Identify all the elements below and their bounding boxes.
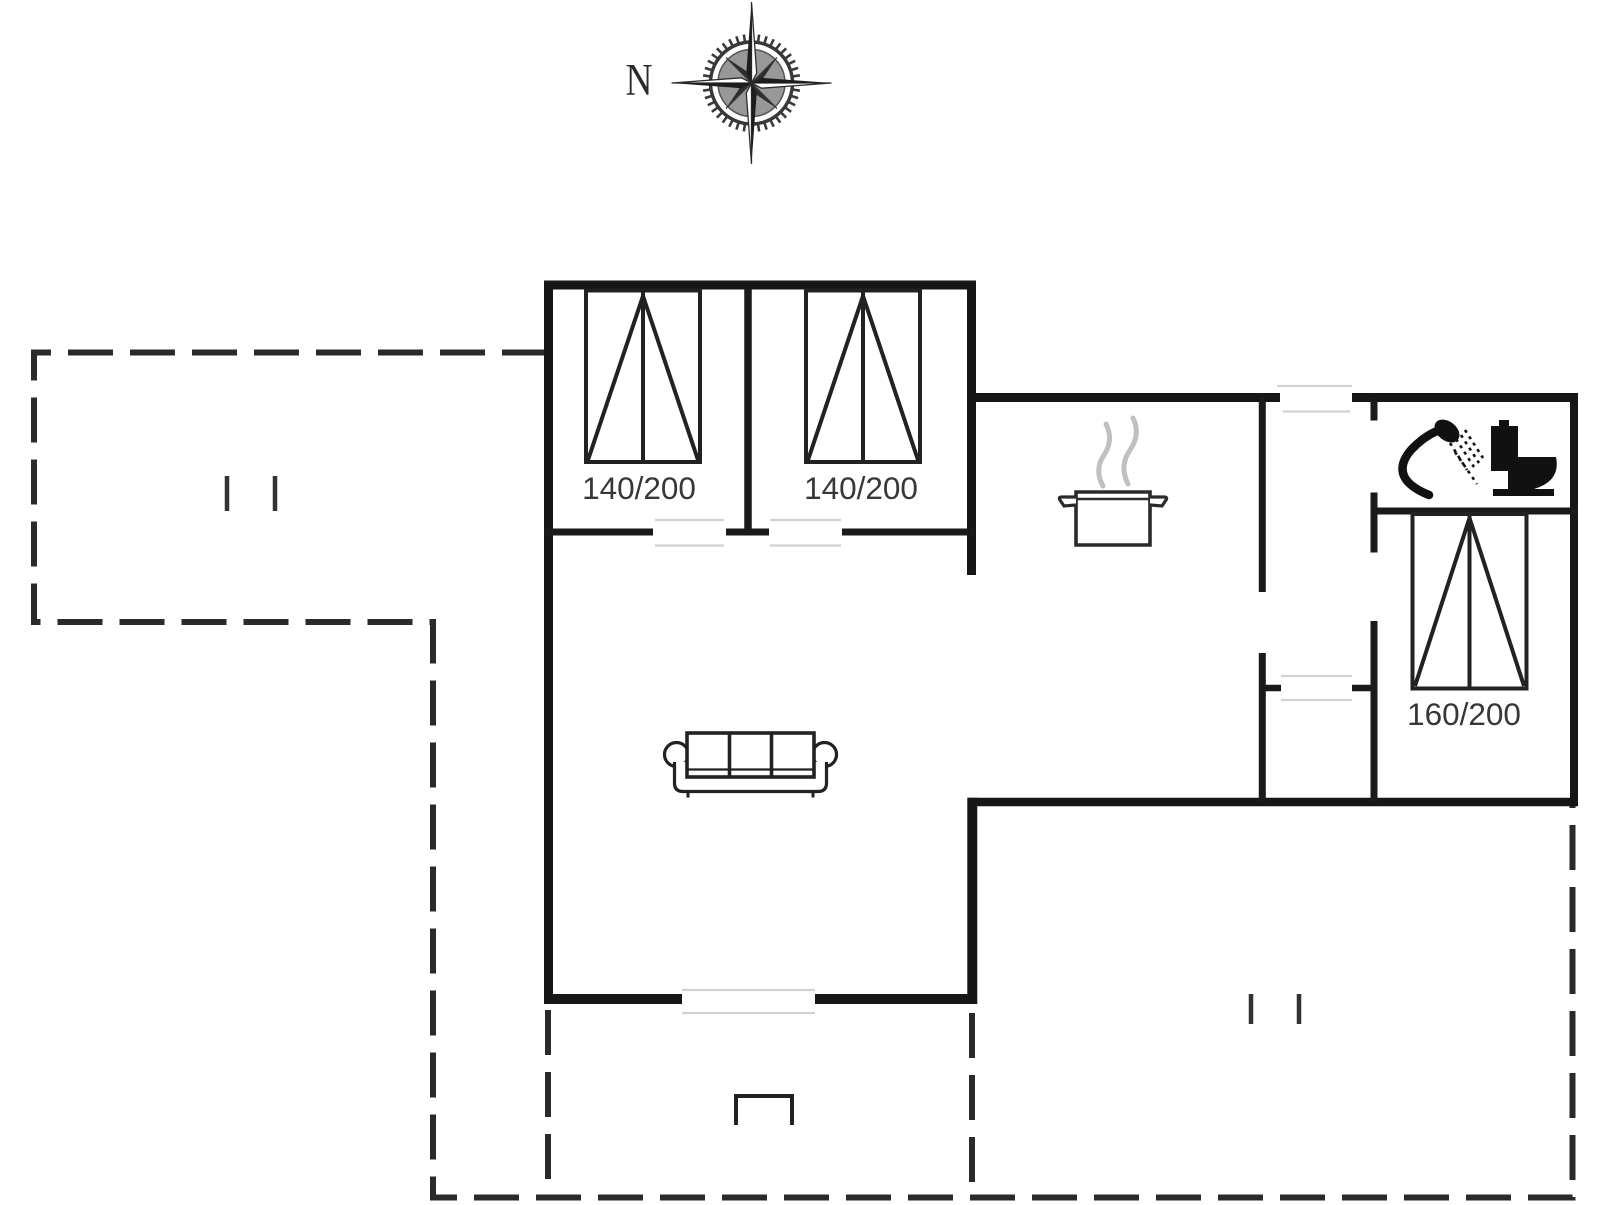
svg-text:140/200: 140/200: [582, 470, 696, 506]
svg-text:140/200: 140/200: [804, 470, 918, 506]
svg-text:N: N: [626, 55, 653, 105]
svg-text:160/200: 160/200: [1407, 696, 1521, 732]
